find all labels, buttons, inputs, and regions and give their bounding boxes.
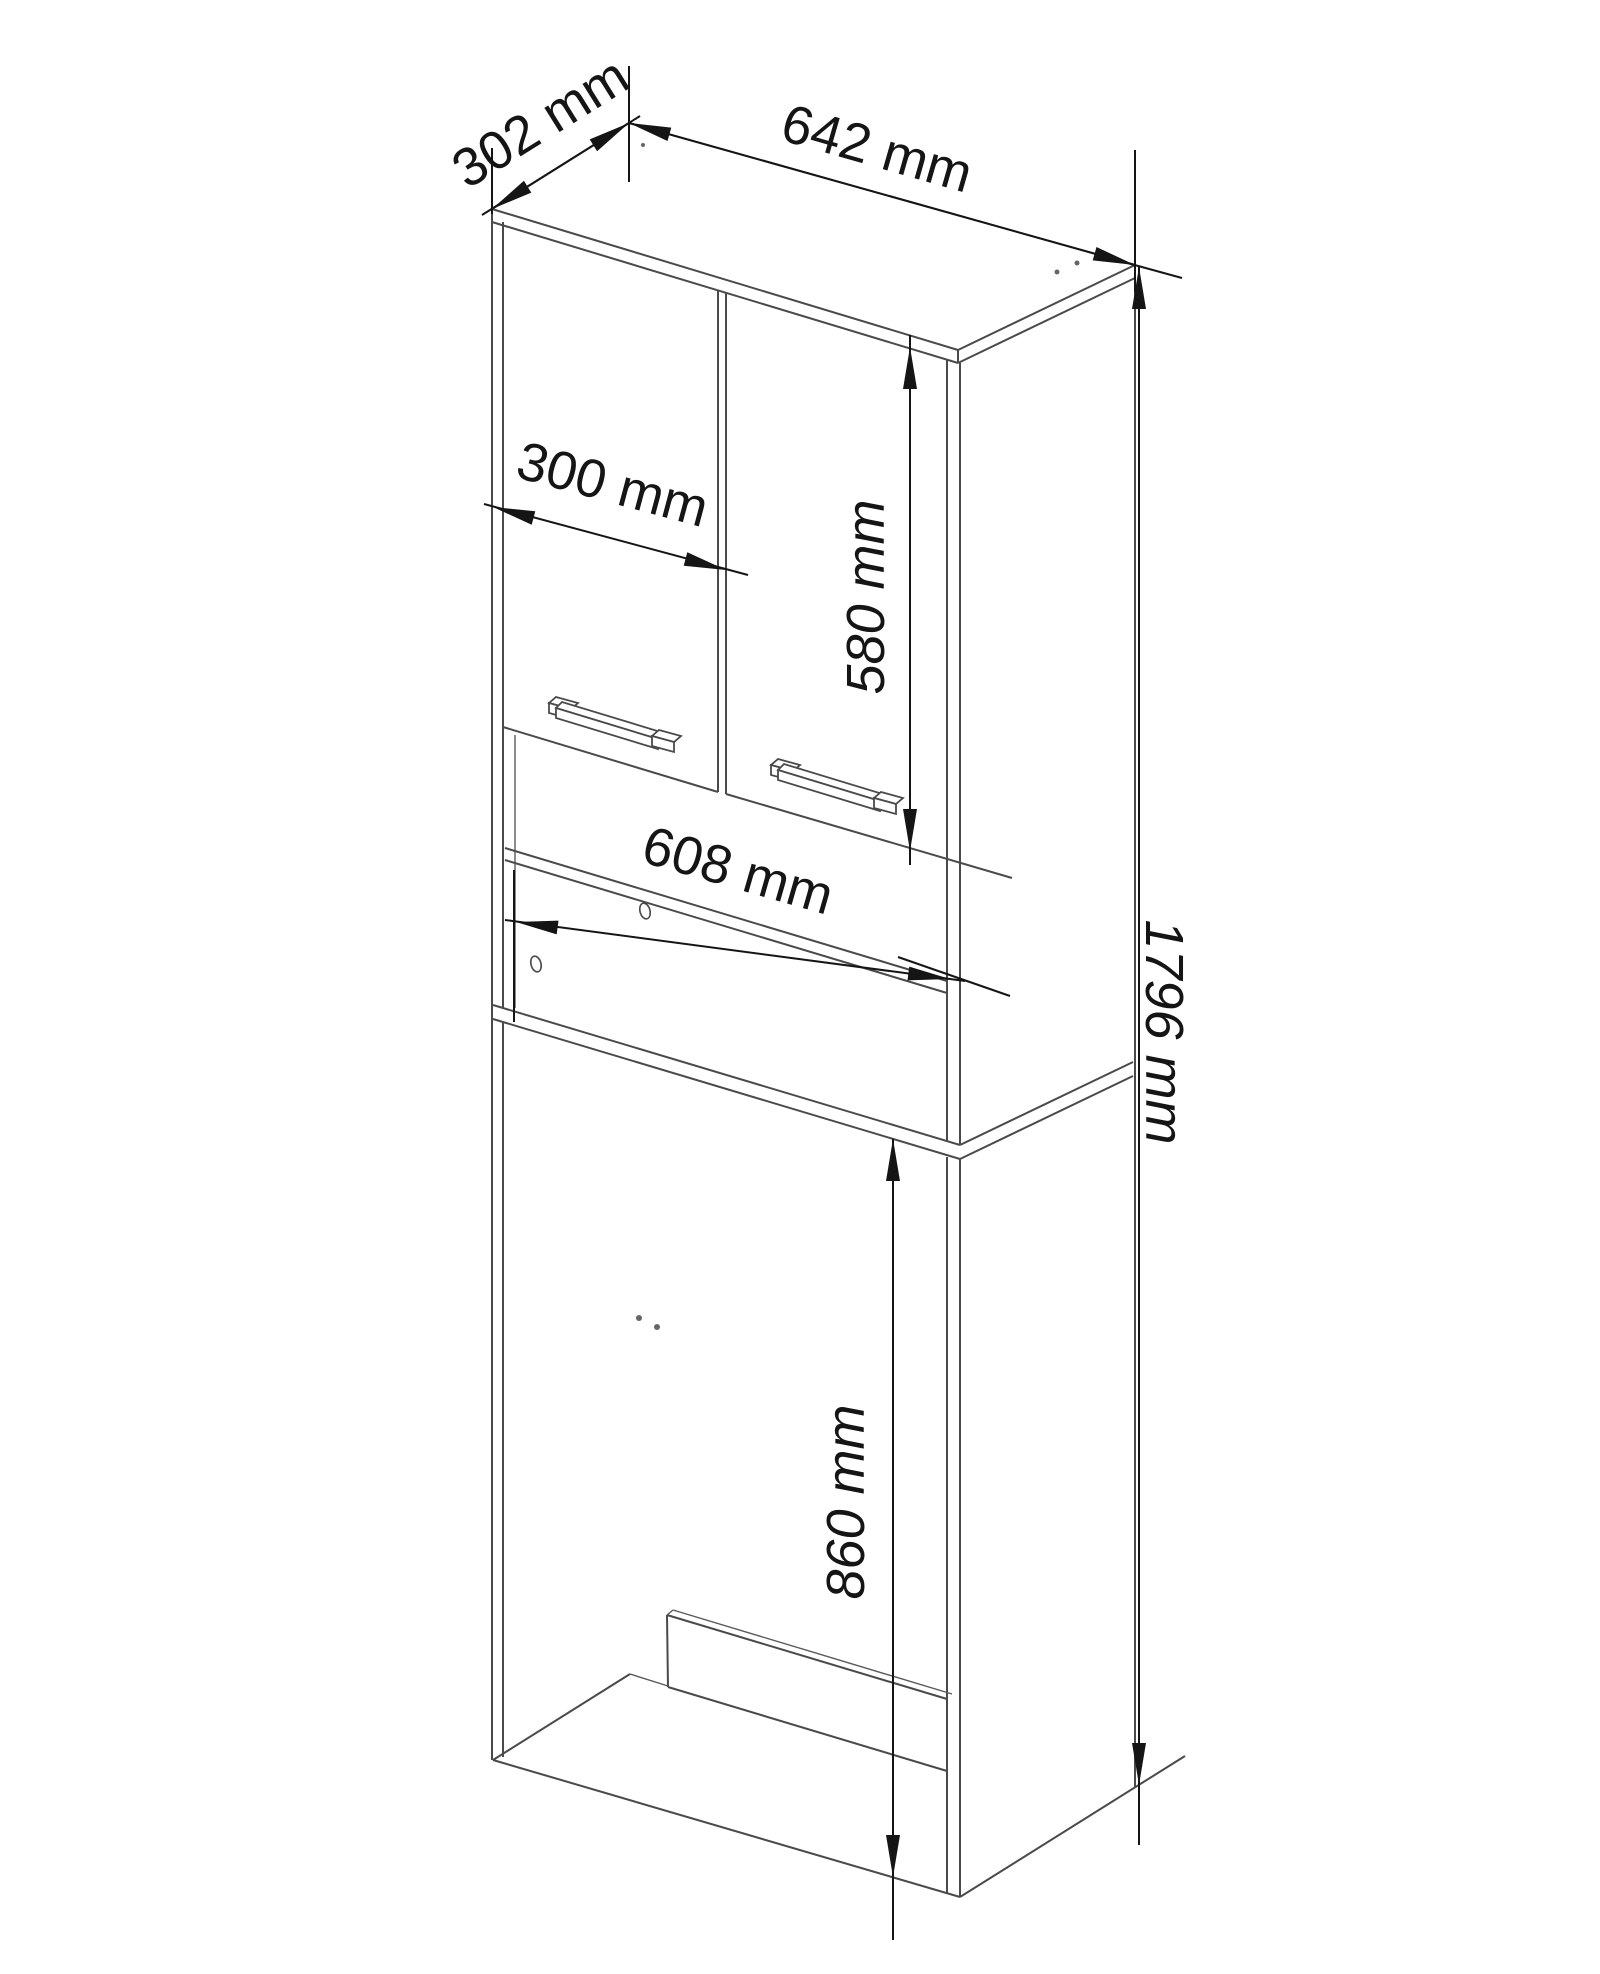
depth-label: 302 mm [442,46,639,200]
divider-panel [493,1005,1133,1330]
dimension-door-width: 300 mm [484,430,748,575]
dimension-width: 642 mm [629,93,1135,292]
cabinet-outline [492,123,1185,1897]
dimension-inner-width: 608 mm [505,815,1010,1022]
dimension-depth: 302 mm [442,46,640,215]
door-width-label: 300 mm [511,430,715,538]
inner-width-label: 608 mm [636,815,840,926]
cabinet-isometric-drawing: 302 mm 642 mm 300 mm 580 mm 608 mm [0,0,1600,1974]
dimension-total-height: 1796 mm [1098,255,1194,1845]
door-height-label: 580 mm [836,499,896,694]
right-door-handle [771,759,903,814]
total-height-label: 1796 mm [1134,919,1194,1144]
base-and-plinth [493,1610,1185,1897]
width-label: 642 mm [775,93,979,204]
cabinet-doors [503,290,1012,878]
washer-space-label: 860 mm [816,1404,876,1599]
technical-drawing-page: 302 mm 642 mm 300 mm 580 mm 608 mm [0,0,1600,1974]
left-door-handle [549,697,681,752]
dimension-washer-space: 860 mm [816,1139,900,1940]
